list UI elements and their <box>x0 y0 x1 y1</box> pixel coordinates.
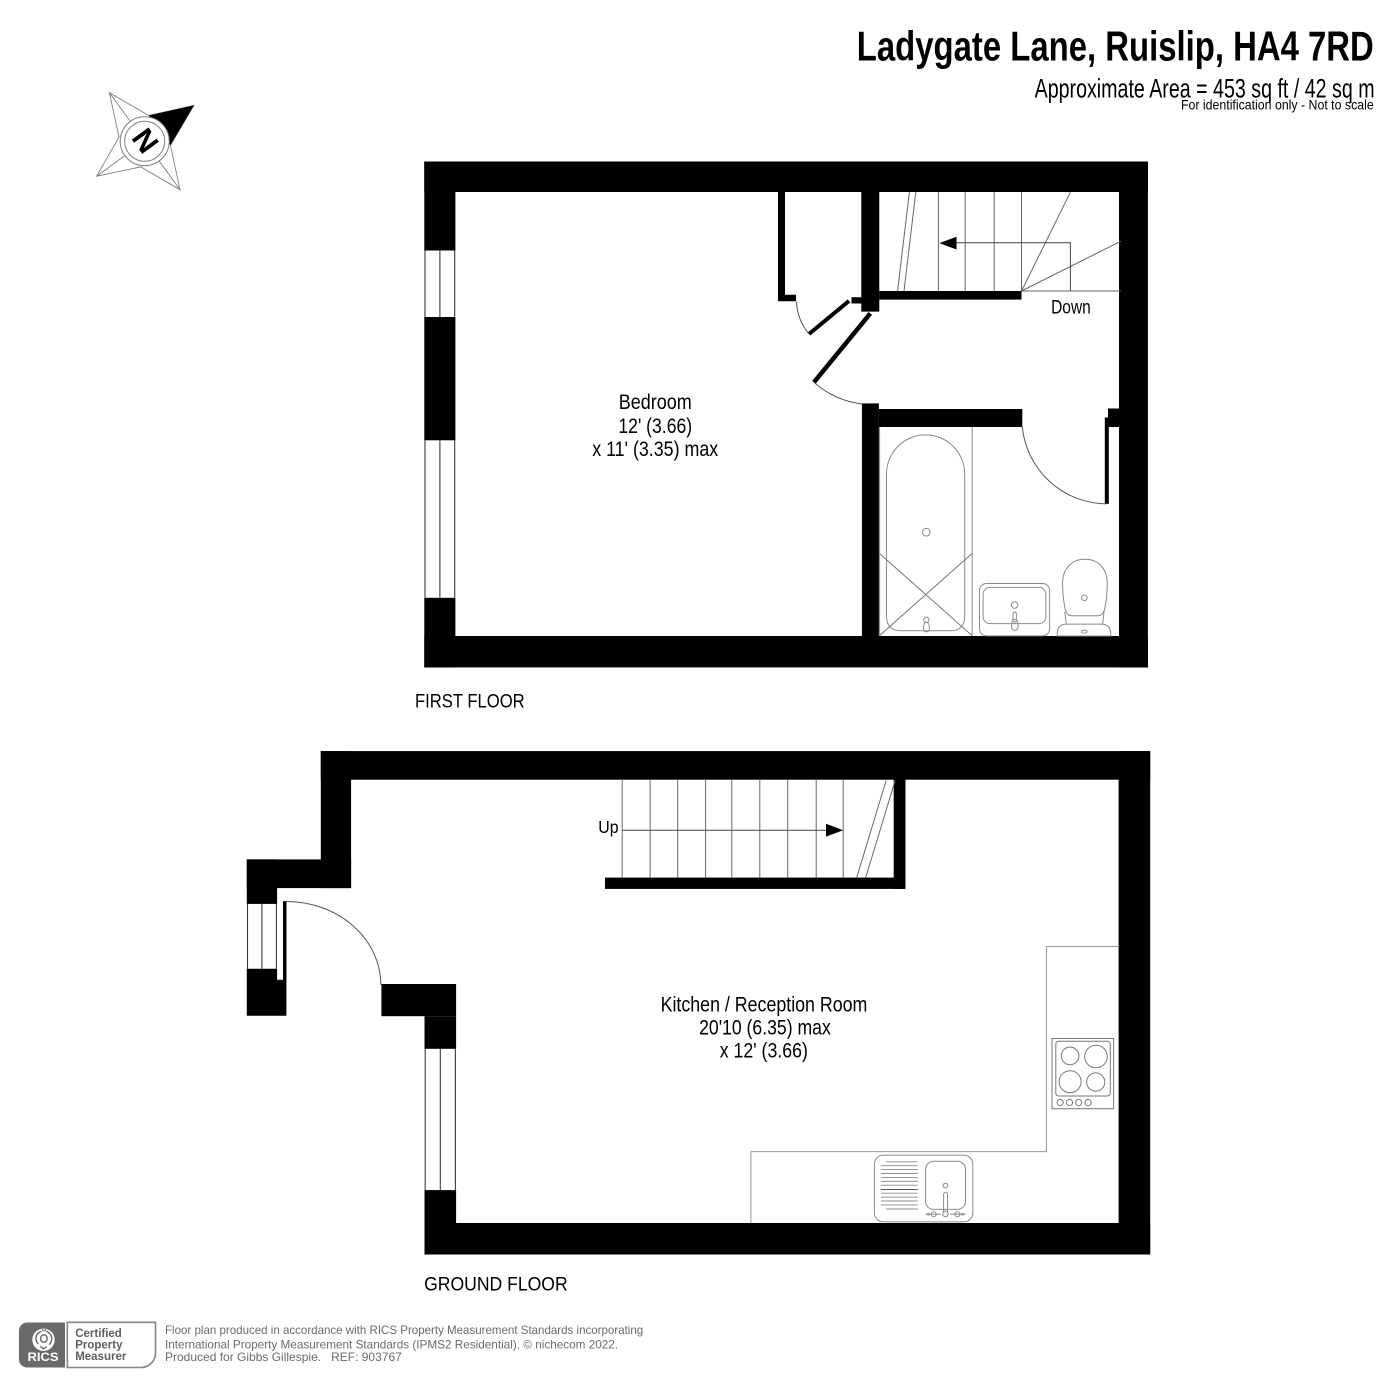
svg-text:Property: Property <box>75 1340 123 1352</box>
svg-text:FIRST FLOOR: FIRST FLOOR <box>415 691 525 712</box>
svg-text:Certified: Certified <box>75 1328 122 1340</box>
svg-text:Kitchen / Reception Room: Kitchen / Reception Room <box>661 993 868 1016</box>
svg-text:Bedroom: Bedroom <box>619 391 692 414</box>
svg-text:x 11' (3.35) max: x 11' (3.35) max <box>592 438 718 461</box>
svg-text:Floor plan produced in accorda: Floor plan produced in accordance with R… <box>165 1323 643 1337</box>
svg-text:RICS: RICS <box>28 1352 59 1364</box>
svg-text:Produced for Gibbs Gillespie.: Produced for Gibbs Gillespie. REF: 90376… <box>165 1350 402 1364</box>
svg-text:Down: Down <box>1051 298 1091 319</box>
svg-text:GROUND FLOOR: GROUND FLOOR <box>424 1275 568 1296</box>
svg-text:Measurer: Measurer <box>75 1351 127 1363</box>
svg-text:20'10 (6.35) max: 20'10 (6.35) max <box>699 1017 831 1040</box>
svg-text:Ladygate Lane, Ruislip, HA4 7R: Ladygate Lane, Ruislip, HA4 7RD <box>857 22 1374 69</box>
svg-text:x 12' (3.66): x 12' (3.66) <box>720 1040 808 1063</box>
svg-text:For identification only - Not: For identification only - Not to scale <box>1181 96 1374 112</box>
svg-text:12' (3.66): 12' (3.66) <box>618 415 692 438</box>
svg-text:Up: Up <box>598 817 618 837</box>
